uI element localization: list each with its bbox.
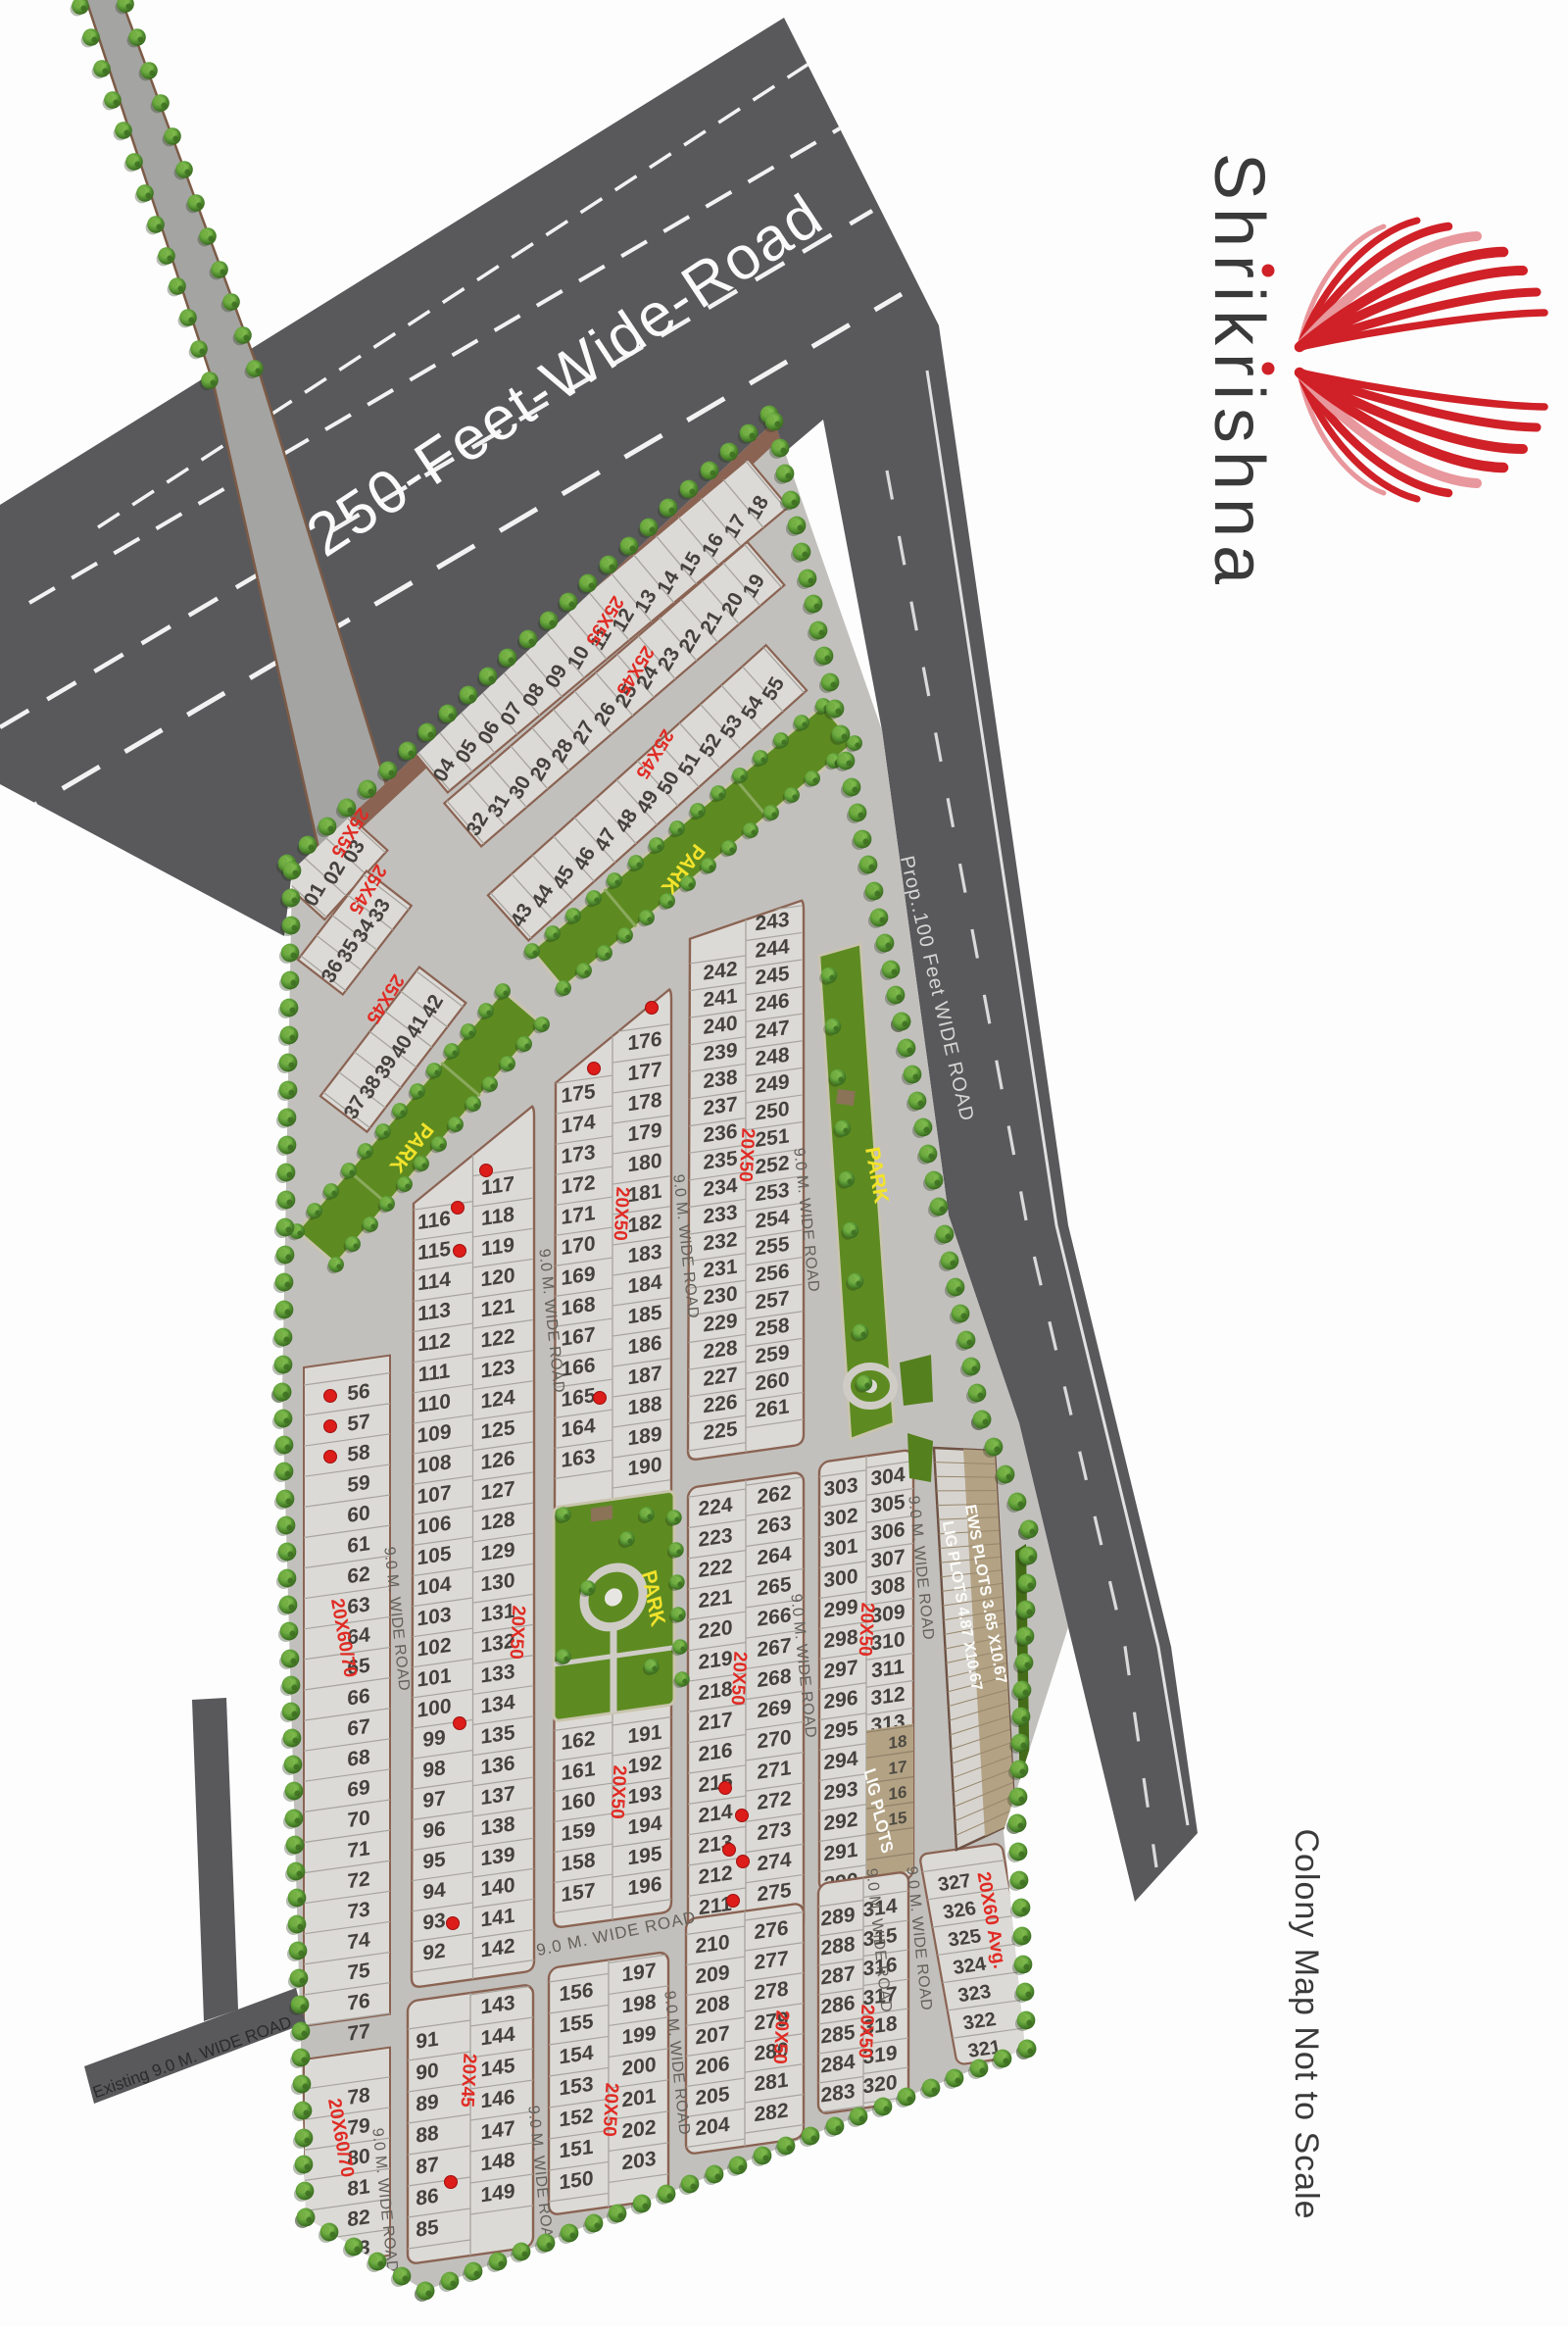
svg-text:102: 102	[416, 1634, 451, 1662]
svg-text:99: 99	[422, 1726, 445, 1752]
svg-text:269: 269	[757, 1696, 791, 1723]
svg-text:91: 91	[416, 2028, 439, 2054]
svg-text:90: 90	[416, 2059, 438, 2085]
svg-text:112: 112	[417, 1329, 451, 1357]
svg-text:62: 62	[347, 1563, 369, 1588]
svg-text:252: 252	[755, 1152, 789, 1179]
svg-text:76: 76	[347, 1990, 369, 2015]
svg-text:20X50: 20X50	[607, 1764, 630, 1819]
svg-text:56: 56	[347, 1380, 369, 1406]
svg-text:67: 67	[347, 1715, 369, 1741]
svg-text:82: 82	[347, 2206, 369, 2231]
svg-text:93: 93	[422, 1910, 445, 1935]
svg-text:75: 75	[347, 1959, 370, 1984]
svg-text:94: 94	[422, 1878, 446, 1904]
svg-text:325: 325	[947, 1925, 983, 1951]
svg-text:126: 126	[480, 1447, 514, 1474]
svg-text:136: 136	[480, 1752, 514, 1779]
svg-text:69: 69	[347, 1776, 369, 1802]
svg-text:20X50: 20X50	[855, 1602, 878, 1657]
svg-text:81: 81	[347, 2175, 370, 2201]
svg-text:77: 77	[347, 2020, 369, 2046]
svg-text:20X50: 20X50	[610, 1186, 633, 1241]
svg-text:88: 88	[416, 2122, 439, 2148]
svg-text:17: 17	[889, 1758, 907, 1779]
svg-text:86: 86	[416, 2185, 438, 2210]
svg-text:107: 107	[416, 1481, 451, 1509]
svg-text:113: 113	[417, 1299, 451, 1326]
svg-text:Colony Map Not to Scale: Colony Map Not to Scale	[1288, 1828, 1325, 2219]
svg-text:16: 16	[889, 1783, 907, 1805]
svg-text:92: 92	[422, 1940, 445, 1965]
svg-text:70: 70	[347, 1807, 369, 1832]
svg-text:115: 115	[417, 1238, 451, 1265]
svg-text:57: 57	[347, 1411, 369, 1436]
svg-text:18: 18	[889, 1732, 907, 1754]
svg-text:20X45: 20X45	[457, 2053, 480, 2108]
svg-text:311: 311	[871, 1656, 905, 1683]
svg-text:118: 118	[481, 1203, 514, 1230]
svg-text:71: 71	[347, 1837, 370, 1862]
svg-text:327: 327	[936, 1870, 972, 1896]
svg-text:20X50: 20X50	[855, 2004, 878, 2059]
svg-text:96: 96	[422, 1817, 445, 1843]
svg-text:72: 72	[347, 1867, 369, 1893]
svg-text:114: 114	[417, 1268, 451, 1296]
svg-text:89: 89	[416, 2091, 438, 2116]
svg-text:326: 326	[941, 1898, 977, 1923]
svg-text:119: 119	[481, 1234, 514, 1262]
svg-text:78: 78	[347, 2084, 370, 2109]
svg-text:59: 59	[347, 1471, 369, 1497]
svg-text:85: 85	[416, 2216, 439, 2242]
svg-text:61: 61	[347, 1532, 370, 1558]
svg-text:257: 257	[755, 1287, 789, 1315]
svg-text:74: 74	[347, 1928, 370, 1954]
svg-text:68: 68	[347, 1746, 370, 1771]
svg-text:322: 322	[961, 2009, 998, 2034]
svg-text:95: 95	[422, 1848, 446, 1873]
svg-text:87: 87	[416, 2154, 438, 2179]
svg-text:66: 66	[347, 1685, 369, 1711]
svg-text:73: 73	[347, 1898, 369, 1923]
svg-text:20X50: 20X50	[599, 2082, 622, 2137]
svg-text:247: 247	[755, 1017, 789, 1044]
svg-text:20X50: 20X50	[769, 2009, 793, 2064]
svg-text:97: 97	[422, 1787, 445, 1812]
svg-text:60: 60	[347, 1502, 369, 1527]
svg-text:116: 116	[417, 1207, 451, 1234]
svg-text:323: 323	[956, 1981, 993, 2007]
svg-text:20X50: 20X50	[727, 1651, 751, 1706]
svg-text:216: 216	[698, 1739, 732, 1766]
svg-text:233: 233	[703, 1201, 737, 1228]
svg-text:58: 58	[347, 1441, 370, 1466]
svg-text:110: 110	[417, 1390, 451, 1417]
svg-text:20X50: 20X50	[735, 1127, 759, 1182]
svg-text:98: 98	[422, 1757, 446, 1782]
svg-text:20X50: 20X50	[506, 1605, 529, 1660]
svg-text:111: 111	[418, 1360, 451, 1387]
